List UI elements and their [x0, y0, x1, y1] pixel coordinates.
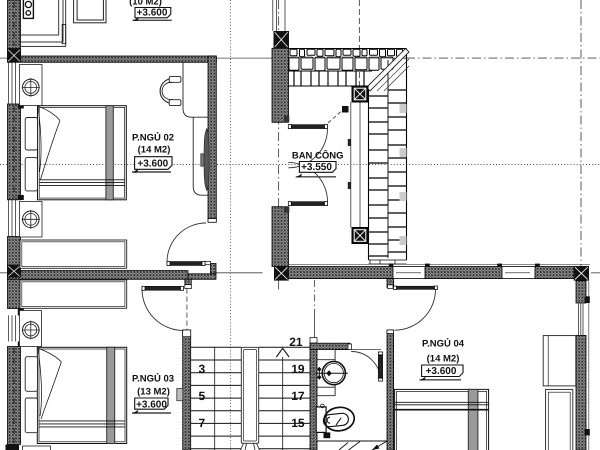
- svg-text:+3.600: +3.600: [136, 399, 167, 410]
- svg-text:3: 3: [198, 362, 205, 376]
- svg-text:(14 M2): (14 M2): [138, 145, 171, 156]
- svg-text:BAN CÔNG: BAN CÔNG: [292, 150, 344, 162]
- svg-text:21: 21: [289, 335, 303, 349]
- svg-text:+3.600: +3.600: [137, 158, 168, 169]
- svg-text:P.NGỦ 02: P.NGỦ 02: [132, 131, 174, 143]
- svg-text:+3.600: +3.600: [137, 8, 168, 19]
- svg-text:+3.550: +3.550: [301, 162, 332, 173]
- svg-text:P.NGỦ 04: P.NGỦ 04: [422, 337, 465, 349]
- svg-text:15: 15: [291, 416, 305, 430]
- svg-text:7: 7: [198, 416, 205, 430]
- svg-text:+3.600: +3.600: [426, 366, 457, 377]
- svg-text:5: 5: [198, 389, 205, 403]
- svg-text:P.NGỦ 03: P.NGỦ 03: [132, 372, 174, 384]
- svg-text:19: 19: [291, 362, 305, 376]
- svg-text:(13 M2): (13 M2): [137, 387, 170, 398]
- svg-text:17: 17: [291, 389, 305, 403]
- svg-text:(14 M2): (14 M2): [427, 354, 460, 365]
- svg-text:(10 M2): (10 M2): [129, 0, 162, 8]
